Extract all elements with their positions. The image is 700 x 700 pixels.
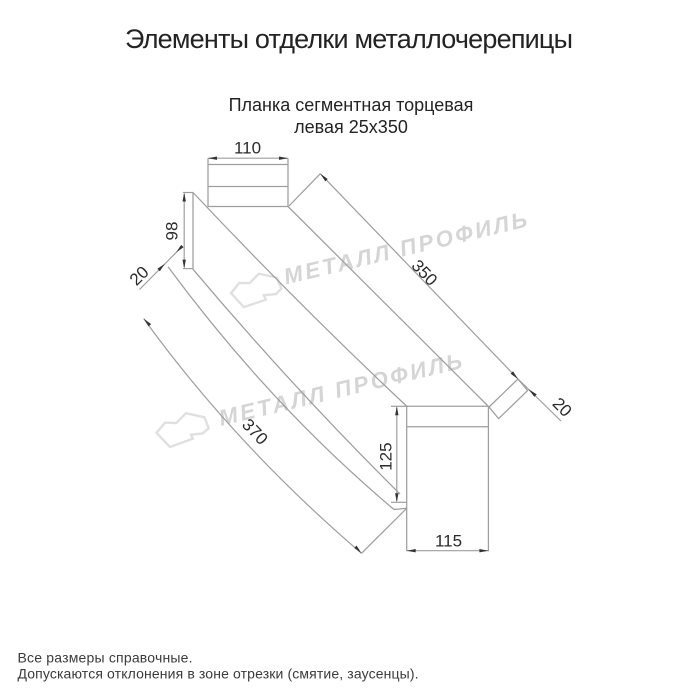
svg-text:115: 115 [435, 532, 462, 551]
svg-text:Все размеры справочные.: Все размеры справочные. [18, 650, 193, 666]
svg-text:98: 98 [163, 222, 182, 241]
svg-text:Планка сегментная торцевая: Планка сегментная торцевая [229, 95, 474, 115]
svg-text:левая 25х350: левая 25х350 [294, 117, 408, 137]
svg-text:Элементы отделки металлочерепи: Элементы отделки металлочерепицы [125, 24, 573, 54]
svg-text:125: 125 [377, 442, 396, 470]
svg-text:Допускаются отклонения в зоне: Допускаются отклонения в зоне отрезки (с… [18, 666, 419, 682]
svg-text:110: 110 [234, 139, 261, 158]
